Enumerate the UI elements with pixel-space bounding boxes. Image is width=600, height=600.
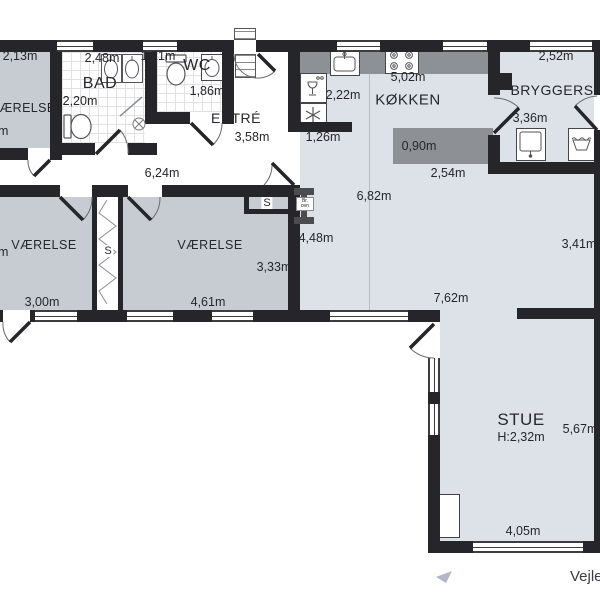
dim-wc-inner: 1,86m (190, 84, 225, 98)
dim-stue-right: 5,67m (563, 422, 598, 436)
room-label-vaerelse-mid: VÆRELSE (177, 238, 242, 252)
window (337, 40, 380, 52)
room-label-wc: WC (183, 57, 211, 75)
dim-bad-top: 2,48m (85, 51, 120, 65)
room-vaerelse-west (0, 197, 92, 310)
dim-wc-top: 1,21m (141, 49, 176, 63)
dim-vaerelse-mid-bottom: 4,61m (191, 295, 226, 309)
dim-bryggers-inner: 3,36m (513, 111, 548, 125)
window (428, 358, 440, 392)
wood-stove-icon: Br. ovn (294, 188, 314, 224)
cursor-arrow-icon (436, 571, 452, 583)
room-label-bryggers: BRYGGERS (510, 82, 593, 98)
watermark-text: Vejle (570, 568, 600, 585)
window (473, 541, 583, 553)
dim-vaerelse-mid-right: 3,33m (257, 260, 292, 274)
dim-vaerelse-west-left-partial: m (0, 245, 8, 259)
fridge-icon (300, 73, 327, 103)
dim-stue-bottom: 4,05m (506, 524, 541, 538)
entry-inner-steps (235, 54, 256, 78)
room-label-stue: STUE (497, 410, 544, 430)
bryggers-sink-icon (516, 128, 546, 161)
dim-bryggers-top: 2,52m (539, 49, 574, 63)
dim-island-width: 2,54m (431, 166, 466, 180)
laundry-tub-icon (568, 128, 596, 161)
room-label-koekken: KØKKEN (375, 92, 441, 109)
dim-stue-ceiling: H:2,32m (497, 430, 544, 444)
dim-vaerelse-nw-left-partial: m (0, 124, 8, 138)
dim-vaerelse-nw-top: 2,13m (3, 49, 38, 63)
dim-hall: 6,24m (145, 166, 180, 180)
stue-niche (440, 494, 460, 538)
window (330, 310, 408, 322)
dim-living-left: 4,48m (299, 231, 334, 245)
room-label-entre: ENTRÉ (211, 110, 261, 126)
window (443, 40, 487, 52)
window (212, 310, 253, 322)
kitchen-sink-icon (330, 50, 360, 76)
floor-plan: Br. ovn (0, 0, 600, 600)
entry-porch-steps (234, 28, 256, 40)
room-label-vaerelse-nw: VÆRELSE (0, 101, 56, 115)
dim-koekken-top: 5,02m (391, 70, 426, 84)
dim-living-vertical: 6,82m (357, 189, 392, 203)
dim-vaerelse-west-bottom: 3,00m (25, 295, 60, 309)
room-label-vaerelse-west: VÆRELSE (11, 238, 76, 252)
dim-island-depth: 0,90m (402, 139, 437, 153)
closet-label: S (102, 245, 113, 257)
room-label-bad: BAD (83, 75, 117, 93)
woodstove-label: ovn (301, 203, 309, 209)
window (35, 310, 77, 322)
dim-bad-inner: 2,20m (63, 94, 98, 108)
floor-drain-icon (131, 116, 147, 137)
dim-living-right: 3,41m (562, 237, 597, 251)
bad-toilet-icon (63, 110, 93, 149)
dim-living-width: 7,62m (434, 291, 469, 305)
dim-entre: 3,58m (235, 130, 270, 144)
window (428, 404, 440, 435)
dim-koekken-left: 2,22m (326, 88, 361, 102)
dim-koekken-lower-left: 1,26m (306, 130, 341, 144)
closet-label: S (261, 197, 272, 209)
window (127, 310, 173, 322)
